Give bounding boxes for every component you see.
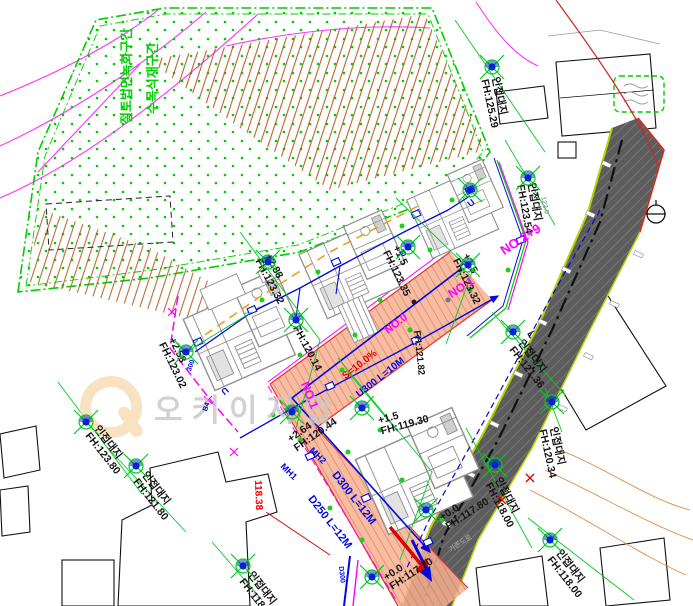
spot-elevation-symbol (283, 307, 309, 333)
spot-elevation-symbol (173, 339, 199, 365)
ground-elevation: 118.38 (252, 480, 263, 510)
site-plan-drawing: 오키이저압 인접대지 FH:125.29인접대지 FH:123.54+1.5 F… (0, 0, 693, 606)
spot-elevation-symbol (359, 564, 385, 590)
adjacent-lot-elevation: 인접대지 FH:118.00 (545, 548, 592, 600)
road-label: 기존도로 (448, 534, 474, 554)
planting-note: 수목식재구간 (146, 42, 160, 114)
spot-elevation-symbol (279, 399, 305, 425)
adjacent-lot-elevation: 인접대지 FH:120.34 (537, 426, 569, 479)
spot-elevation-symbol (349, 395, 375, 421)
adjacent-lot-elevation: 인접대지 FH:121.36 (507, 338, 555, 391)
gutter-mark: U (219, 385, 230, 396)
spot-elevation-symbol (413, 497, 439, 523)
site-level: +0.0 FH:117.80 (438, 487, 491, 532)
spot-elevation-symbol (73, 409, 99, 435)
spot-elevation-symbol (479, 54, 505, 80)
spot-elevation-symbol (457, 177, 483, 203)
spot-elevation-symbol (539, 389, 565, 415)
spot-elevation-symbol (455, 252, 481, 278)
site-level: FH:121.82 (411, 330, 426, 376)
site-level: +0.0 FH:117.70 (382, 547, 435, 592)
pipe-label: B4 (202, 402, 212, 413)
station-label: NO.0 (383, 312, 410, 337)
slope-note: 절토법면녹화구간 (120, 28, 134, 124)
pipe-label: D250 L=12M (305, 494, 353, 551)
station-label: NO.2+9 (498, 221, 543, 257)
spot-elevation-symbol (500, 319, 526, 345)
site-level: +1.5 FH:119.30 (377, 403, 430, 437)
spot-elevation-symbol (537, 527, 563, 553)
adjacent-lot-elevation: 인접대지 FH:125.29 (479, 76, 511, 129)
annotation-layer: 인접대지 FH:125.29인접대지 FH:123.54+1.5 FH:123.… (0, 0, 693, 606)
spot-elevation-symbol (395, 234, 421, 260)
spot-elevation-symbol (255, 249, 281, 275)
spot-elevation-symbol (515, 165, 541, 191)
pipe-label: D300 L=12M (329, 470, 377, 527)
spot-elevation-symbol (482, 452, 508, 478)
pipe-label: D300 (337, 566, 346, 583)
manhole-label: MH1 (278, 462, 298, 482)
spot-elevation-symbol (123, 453, 149, 479)
spot-elevation-symbol (230, 553, 256, 579)
manhole-label: MH2 (307, 446, 327, 466)
